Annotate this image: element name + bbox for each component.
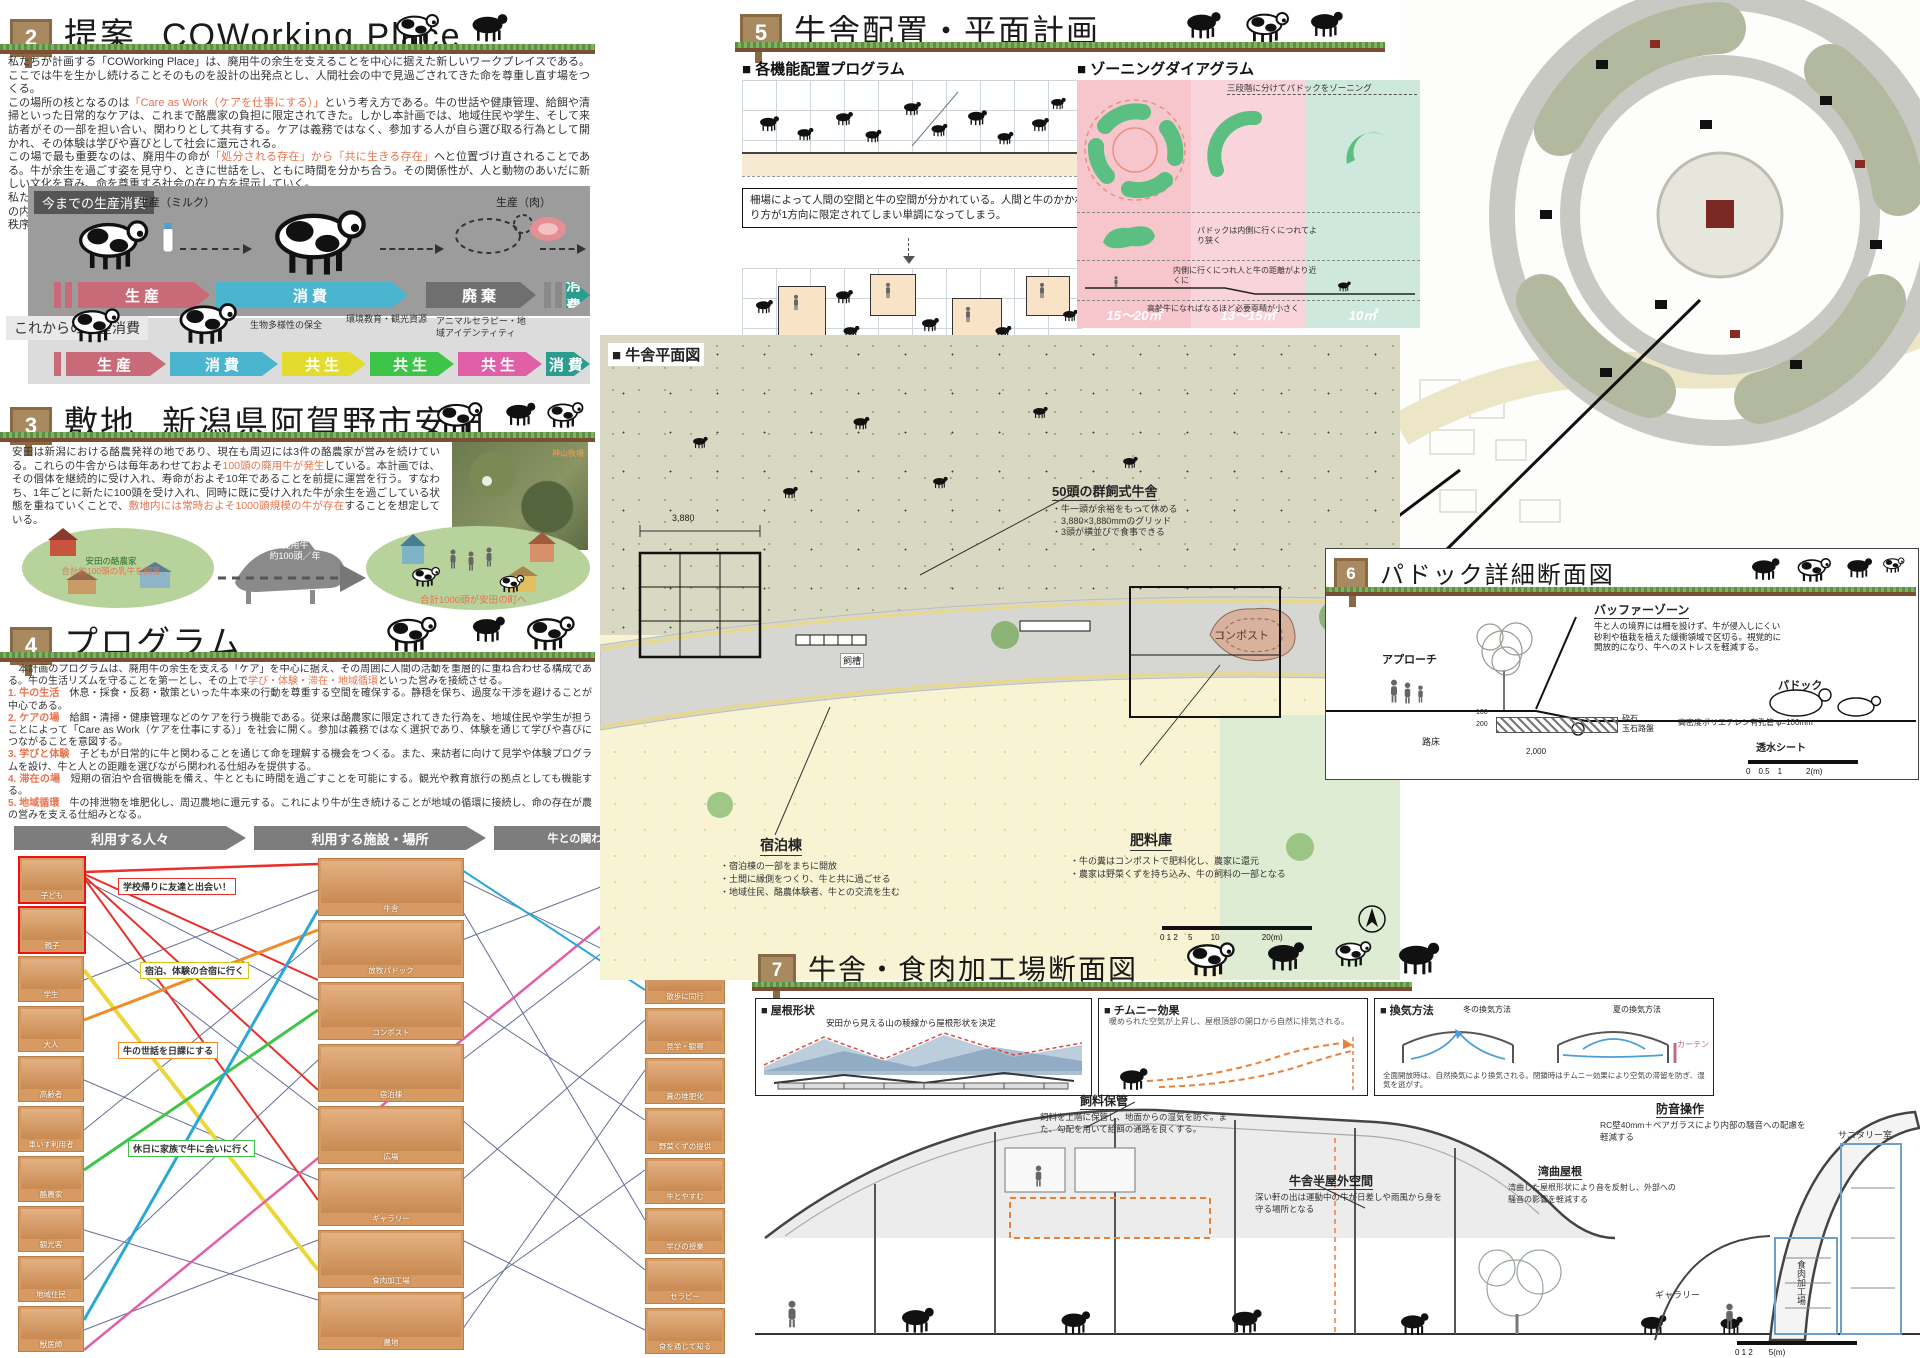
- chimney-box: ■ チムニー効果 暖められた空気が上昇し、屋根頂部の開口から自然に排気される。: [1098, 998, 1368, 1096]
- feed-storage-label: 飼料保管 飼料を上階に保管し、地面からの湿気を防ぐ。また、勾配を用いて給餌の通路…: [1040, 1092, 1230, 1135]
- subhead-function-program: 各機能配置プログラム: [742, 58, 905, 79]
- place-tile: 放牧パドック: [318, 920, 464, 978]
- plan-title: ■ 牛舎平面図: [608, 343, 704, 366]
- fertilizer-label: 肥料庫 ・牛の糞はコンポストで肥料化し、農家に還元・農家は野菜くずを持ち込み、牛…: [1070, 830, 1290, 881]
- people-tile: 車いす利用者: [18, 1106, 84, 1152]
- compost-label: コンポスト: [1214, 627, 1269, 643]
- ventilation-caption: 全面開放時は、自然換気により換気される。閉鎖時はチムニー効果により空気の滞留を防…: [1383, 1071, 1705, 1089]
- matrix-header-places: 利用する施設・場所: [254, 826, 486, 850]
- sheet-label: 透水シート: [1756, 739, 1806, 754]
- paddock-section-drawing: [1326, 599, 1916, 749]
- flow-step: 共生: [370, 352, 454, 376]
- place-tile: ギャラリー: [318, 1168, 464, 1226]
- down-arrow: [908, 238, 909, 256]
- chimney-caption: 暖められた空気が上昇し、屋根頂部の開口から自然に排気される。: [1109, 1017, 1359, 1027]
- zone-area-value: 13〜15㎡: [1191, 305, 1305, 324]
- relation-tile: 野菜くずの提供: [645, 1108, 725, 1154]
- place-tile: コンポスト: [318, 982, 464, 1040]
- zoning-donut: [1081, 96, 1189, 204]
- gallery-label: ギャラリー: [1655, 1288, 1700, 1301]
- site-diagram-left-label: 安田の酪農家合計約100頭の乳牛を飼育: [48, 556, 174, 576]
- winter-vent-label: 冬の換気方法: [1463, 1004, 1511, 1015]
- ventilation-box: ■ 換気方法 冬の換気方法 夏の換気方法 カーテン 全面開放時は、自然換気により…: [1374, 998, 1714, 1096]
- function-strip-before: [742, 80, 1082, 177]
- soil-divider: [735, 48, 1385, 52]
- subhead-zoning: ゾーニングダイアグラム: [1077, 58, 1254, 79]
- people-tile: 酪農家: [18, 1156, 84, 1202]
- barn-floor-plan: ■ 牛舎平面図 50頭の群飼式牛舎 ・牛一頭が余裕をもって休める 3,880×3…: [600, 335, 1400, 980]
- place-tile: 農地: [318, 1292, 464, 1350]
- relation-tile: 牛とやすむ: [645, 1158, 725, 1204]
- flow-old-title: 今までの生産消費: [34, 191, 154, 214]
- barn-label: 50頭の群飼式牛舎 ・牛一頭が余裕をもって休める 3,880×3,880mmのグ…: [1052, 481, 1252, 539]
- function-caption-1: 柵場によって人間の空間と牛の空間が分かれている。人間と牛のかかわり方が1方向に限…: [742, 188, 1096, 228]
- ventilation-diagram: [1383, 1015, 1703, 1067]
- relation-tile: 食を通じて知る: [645, 1308, 725, 1354]
- cow-icon: [1180, 938, 1480, 982]
- meat-plant-label: 食肉加工場: [1795, 1260, 1808, 1305]
- chimney-title: ■ チムニー効果: [1104, 1002, 1179, 1018]
- flow-step: 廃棄: [426, 282, 536, 308]
- soil-divider: [1326, 592, 1916, 596]
- flow-step: 消費: [566, 282, 590, 308]
- dim-200: 200: [1476, 721, 1488, 728]
- relation-tile: 糞の堆肥化: [645, 1058, 725, 1104]
- site-diagram-cow-label: 廃用牛約100頭／年: [250, 540, 340, 562]
- matrix-header-people: 利用する人々: [14, 826, 246, 850]
- flow-arrow: [180, 248, 250, 250]
- section7-scale: 0 1 2 5(m): [1735, 1338, 1859, 1358]
- cow-icon: [168, 298, 244, 346]
- meat-icon: [528, 214, 568, 244]
- down-arrow-head: [903, 256, 915, 264]
- presentation-board: 2 提案COWorking Place 私たちが計画する「COWorking P…: [0, 0, 1920, 1358]
- cow-icon: [380, 612, 590, 656]
- photo-label: 神山牧場: [552, 448, 584, 459]
- people-tile: 学生: [18, 956, 84, 1002]
- flow-arrow: [540, 248, 584, 250]
- roadbed-label: 路床: [1422, 735, 1440, 748]
- pipe-label: 高密度ポリエチレン有孔管 φ=100mm: [1678, 717, 1813, 728]
- soundproof-label: 防音操作 RC壁40mm＋ペアガラスにより内部の騒音への配慮を軽減する: [1600, 1100, 1810, 1143]
- sanitary-label: サニタリー室: [1838, 1128, 1892, 1141]
- flow-note: アニマルセラピー・地域アイデンティティ: [436, 316, 526, 339]
- relation-tile: 見学・観察: [645, 1008, 725, 1054]
- place-tile: 食肉加工場: [318, 1230, 464, 1288]
- section6-header: 6 パドック詳細断面図: [1334, 555, 1615, 590]
- flow-note: 生物多様性の保全: [250, 320, 322, 332]
- place-tile: 牛舎: [318, 858, 464, 916]
- site-plan-map: [1400, 0, 1920, 560]
- relation-tile: 学びの授業: [645, 1208, 725, 1254]
- flow-arrow: [380, 248, 442, 250]
- cow-icon: [64, 304, 124, 344]
- people-tile: 観光客: [18, 1206, 84, 1252]
- cow-icon: [390, 10, 550, 46]
- milk-bottle-icon: [160, 220, 176, 254]
- people-tile: 子ども: [18, 856, 86, 904]
- summer-vent-label: 夏の換気方法: [1613, 1004, 1661, 1015]
- trough-label: 飼槽: [840, 653, 864, 668]
- barn-dimension: 3,880: [672, 513, 695, 523]
- flow-note: 環境教育・観光資源: [346, 314, 427, 326]
- zoning-caption: 三段階に分けてパドックをゾーニング: [1227, 84, 1417, 95]
- cow-icon: [256, 202, 378, 278]
- place-tile: 広場: [318, 1106, 464, 1164]
- people-tile: 獣医師: [18, 1306, 84, 1352]
- flow-new-panel: これからの生産消費 生物多様性の保全 環境教育・観光資源 アニマルセラピー・地域…: [28, 318, 590, 384]
- zoning-crescent: [1329, 114, 1399, 184]
- soil-divider: [0, 658, 595, 662]
- roof-shape-diagram: [764, 1027, 1082, 1091]
- people-tile: 親子: [18, 906, 86, 954]
- cow-icon: [66, 214, 156, 272]
- people-tile: 地域住民: [18, 1256, 84, 1302]
- zoning-section-line: [1085, 276, 1415, 298]
- relation-ribbon: 牛の世話を日課にする: [118, 1042, 218, 1059]
- zoning-diagram: 三段階に分けてパドックをゾーニング パドックは内側に行くにつれてより狭く 内側に…: [1077, 80, 1420, 328]
- soil-divider: [0, 50, 595, 54]
- flow-bar: [555, 282, 562, 308]
- lodging-label: 宿泊棟 ・宿泊棟の一部をまちに開放・土間に縁側をつくり、牛と共に過ごせる・地域住…: [720, 835, 920, 899]
- dim-2000: 2,000: [1526, 747, 1546, 756]
- zoning-note: パドックは内側に行くにつれてより狭く: [1197, 226, 1317, 245]
- dim-100: 100: [1476, 709, 1488, 716]
- relation-ribbon: 学校帰りに友達と出会い！: [118, 878, 236, 895]
- flow-bar: [54, 352, 61, 376]
- flow-step: 消費: [216, 282, 408, 308]
- flow-step: 生産: [66, 352, 166, 376]
- zoning-ring-piece: [1203, 106, 1293, 196]
- chimney-diagram: [1107, 1037, 1359, 1091]
- soil-divider: [752, 987, 1412, 991]
- relation-ribbon: 宿泊、体験の合宿に行く: [140, 962, 249, 979]
- people-tile: 大人: [18, 1006, 84, 1052]
- flow-step: 共生: [282, 352, 366, 376]
- section6-title: パドック詳細断面図: [1380, 555, 1615, 590]
- section6-panel: 6 パドック詳細断面図 バッファーゾーン 牛と人の境界には柵を設けず、牛が侵入し…: [1325, 548, 1919, 780]
- photo-marker: [482, 476, 492, 486]
- relation-ribbon: 休日に家族で牛に会いに行く: [128, 1140, 255, 1157]
- zone-area-value: 10㎡: [1305, 305, 1420, 324]
- cobble-label: 玉石路盤: [1622, 723, 1654, 734]
- flow-bar: [54, 282, 61, 308]
- people-tile: 高齢者: [18, 1056, 84, 1102]
- flow-step: 共生: [458, 352, 542, 376]
- zoning-blob: [1093, 218, 1163, 254]
- section6-number: 6: [1334, 558, 1368, 590]
- section3-body: 安田は新潟における酪農発祥の地であり、現在も周辺には3件の酪農家が営みを続けてい…: [12, 446, 440, 528]
- cow-icon: [1746, 555, 1906, 585]
- roof-shape-box: ■ 屋根形状 安田から見える山の稜線から屋根形状を決定: [755, 998, 1092, 1096]
- flow-step: 消費: [546, 352, 590, 376]
- semi-outdoor-label: 牛舎半屋外空間 深い軒の出は運動中の牛が日差しや雨風から身を守る場所となる: [1255, 1172, 1450, 1215]
- section4-body: 本計画のプログラムは、廃用牛の余生を支える「ケア」を中心に据え、その周囲に人間の…: [8, 664, 592, 820]
- flow-old-panel: 今までの生産消費 生産（ミルク） 生産（肉） 生産 消費 廃棄 消費: [28, 186, 590, 316]
- milk-label: 生産（ミルク）: [138, 194, 215, 210]
- curved-roof-label: 湾曲屋根 湾曲した屋根形状により音を反射し、外部への騒音の影響を軽減する: [1508, 1162, 1678, 1205]
- flow-step: 消費: [170, 352, 278, 376]
- relation-tile: セラピー: [645, 1258, 725, 1304]
- roof-shape-title: ■ 屋根形状: [761, 1002, 815, 1018]
- cow-icon: [1180, 8, 1380, 44]
- gravel-band: [1496, 717, 1618, 733]
- place-tile: 宿泊棟: [318, 1044, 464, 1102]
- site-diagram-right-label: 合計1000頭が安田の町へ: [420, 592, 600, 606]
- zone-area-value: 15〜20㎡: [1077, 305, 1191, 324]
- cow-icon: [430, 398, 590, 436]
- flow-bar: [544, 282, 551, 308]
- section6-scale: 0 0.5 1 2(m): [1746, 757, 1860, 777]
- dashed-cow-icon: [443, 206, 539, 268]
